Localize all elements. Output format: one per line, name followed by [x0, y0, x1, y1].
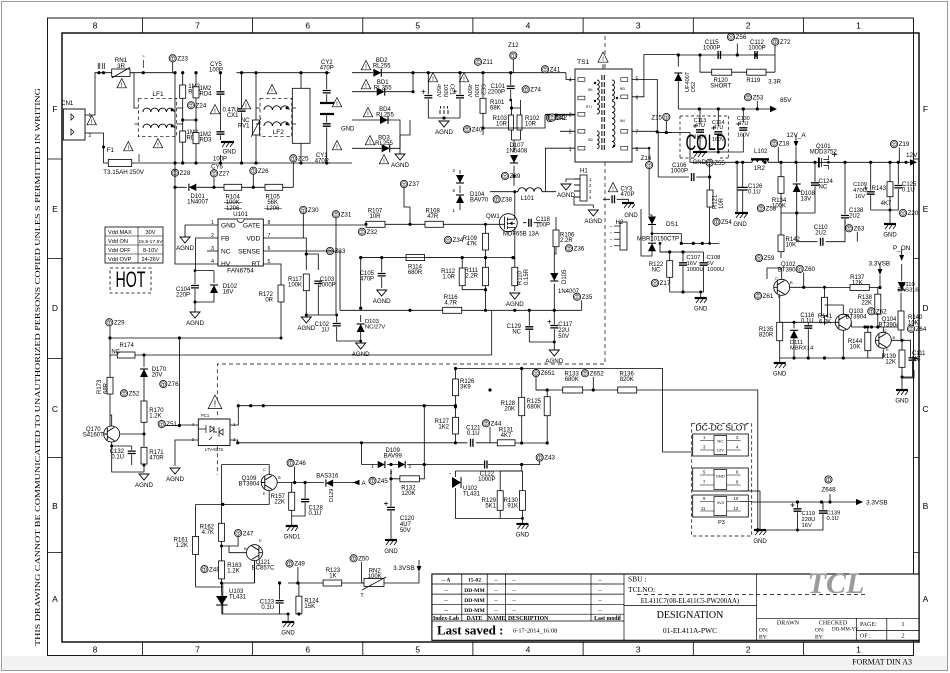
svg-text:91K: 91K — [507, 504, 518, 510]
svg-text:Z12: Z12 — [508, 42, 519, 49]
svg-text:5: 5 — [415, 645, 420, 655]
svg-text:FORMAT DIN A3: FORMAT DIN A3 — [852, 658, 912, 667]
svg-text:2: 2 — [89, 133, 92, 139]
svg-text:F: F — [923, 104, 928, 114]
svg-text:AGND: AGND — [166, 476, 184, 483]
svg-text:0.1U: 0.1U — [748, 190, 761, 196]
svg-text:--: -- — [494, 588, 498, 594]
svg-text:BAV99: BAV99 — [384, 454, 403, 460]
svg-text:!: ! — [245, 103, 247, 110]
svg-text:OF :: OF : — [860, 634, 871, 640]
svg-text:1000P: 1000P — [478, 477, 495, 483]
svg-text:10: 10 — [734, 496, 739, 501]
svg-text:AGND: AGND — [373, 298, 391, 305]
svg-text:12: 12 — [734, 506, 739, 511]
svg-text:DD-MM: DD-MM — [464, 588, 485, 594]
svg-text:T: T — [774, 40, 777, 45]
svg-text:0.1U: 0.1U — [902, 188, 915, 194]
svg-text:!: ! — [336, 144, 338, 151]
svg-text:Z41: Z41 — [550, 67, 561, 74]
svg-text:470P: 470P — [320, 66, 334, 72]
svg-text:3.3VSB: 3.3VSB — [866, 500, 888, 507]
svg-text:AGND: AGND — [391, 162, 409, 169]
svg-text:B: B — [244, 546, 247, 551]
svg-text:3V3: 3V3 — [717, 500, 725, 505]
svg-text:T3.15AH 250V: T3.15AH 250V — [103, 169, 144, 176]
svg-text:!: ! — [365, 83, 367, 90]
svg-text:T: T — [288, 561, 291, 566]
svg-text:680R: 680R — [408, 270, 423, 276]
svg-text:T: T — [447, 238, 450, 243]
svg-text:VDD: VDD — [246, 236, 260, 243]
svg-text:S4160T: S4160T — [83, 433, 104, 439]
svg-text:T: T — [902, 211, 905, 216]
svg-text:BY:: BY: — [759, 635, 768, 641]
svg-text:!: ! — [365, 64, 367, 71]
svg-text:T: T — [538, 455, 541, 460]
svg-text:AGND: AGND — [545, 358, 563, 365]
svg-text:GND: GND — [883, 233, 897, 239]
svg-text:680K: 680K — [527, 405, 541, 411]
svg-text:E: E — [259, 538, 262, 543]
svg-text:B: B — [923, 501, 929, 511]
svg-text:Z652: Z652 — [590, 371, 605, 378]
svg-text:Z11: Z11 — [483, 59, 494, 66]
svg-text:!: ! — [336, 101, 338, 108]
svg-text:T: T — [798, 267, 801, 272]
svg-text:RT1: RT1 — [586, 105, 592, 109]
svg-text:E: E — [886, 347, 889, 352]
svg-text:T: T — [203, 567, 206, 572]
svg-text:20K: 20K — [504, 407, 515, 413]
svg-text:C: C — [52, 404, 58, 414]
svg-text:RT: RT — [252, 261, 261, 268]
svg-text:4: 4 — [569, 78, 572, 84]
svg-text:0.15R: 0.15R — [524, 268, 530, 285]
svg-text:T: T — [512, 53, 515, 58]
svg-text:RL255: RL255 — [375, 141, 393, 147]
svg-text:GND: GND — [223, 150, 237, 156]
svg-text:2U2: 2U2 — [849, 214, 861, 220]
svg-text:TL431: TL431 — [463, 492, 481, 498]
svg-text:BT3904: BT3904 — [878, 323, 900, 329]
svg-text:Z23: Z23 — [177, 56, 188, 63]
svg-text:!: ! — [91, 119, 93, 126]
svg-text:!: ! — [127, 145, 129, 152]
svg-text:Z47: Z47 — [243, 530, 254, 537]
svg-text:C: C — [259, 562, 262, 567]
svg-text:~: ~ — [449, 471, 452, 476]
svg-text:!: ! — [602, 56, 604, 63]
svg-text:!: ! — [369, 139, 371, 146]
svg-text:11: 11 — [701, 506, 706, 511]
svg-text:U101: U101 — [233, 211, 248, 218]
svg-text:Z50: Z50 — [358, 556, 369, 563]
svg-text:2.2R: 2.2R — [560, 238, 573, 244]
svg-text:T: T — [551, 115, 554, 120]
svg-text:C: C — [922, 404, 928, 414]
svg-text:GND: GND — [516, 533, 530, 539]
svg-text:6: 6 — [305, 645, 310, 655]
svg-text:B: B — [893, 335, 896, 340]
svg-text:E: E — [923, 204, 929, 214]
svg-text:T: T — [568, 246, 571, 251]
svg-text:1.2K: 1.2K — [149, 414, 161, 420]
svg-text:T: T — [848, 226, 851, 231]
svg-text:120K: 120K — [401, 491, 415, 497]
svg-text:BAS316: BAS316 — [316, 474, 339, 480]
svg-text:1000P: 1000P — [703, 46, 720, 52]
svg-text:NAME: NAME — [488, 616, 506, 622]
svg-text:Z15: Z15 — [651, 115, 662, 122]
svg-text:Z49: Z49 — [294, 561, 305, 568]
svg-text:T: T — [403, 182, 406, 187]
svg-text:Z651: Z651 — [541, 370, 556, 377]
svg-text:Z55: Z55 — [714, 160, 725, 167]
svg-text:100U: 100U — [442, 84, 448, 97]
svg-text:Z35: Z35 — [582, 294, 593, 301]
svg-text:1: 1 — [856, 21, 861, 31]
svg-text:--: -- — [444, 608, 448, 614]
svg-text:1N4007: 1N4007 — [187, 200, 209, 206]
svg-text:QW1: QW1 — [486, 214, 500, 220]
svg-text:AGND: AGND — [557, 192, 575, 199]
svg-text:1K2: 1K2 — [438, 425, 449, 431]
svg-text:--: -- — [512, 608, 516, 614]
svg-text:D105: D105 — [562, 269, 568, 284]
svg-text:Z37: Z37 — [409, 181, 420, 188]
svg-text:0.1U: 0.1U — [467, 431, 480, 437]
svg-text:AGND: AGND — [506, 301, 524, 308]
svg-text:NC: NC — [717, 439, 723, 444]
svg-text:Z16: Z16 — [641, 155, 652, 162]
svg-text:T: T — [466, 127, 469, 132]
svg-text:GND: GND — [895, 399, 909, 405]
svg-text:MDF65B 13A: MDF65B 13A — [503, 232, 539, 238]
svg-text:Z27: Z27 — [219, 171, 230, 178]
svg-text:ON:: ON: — [759, 628, 769, 634]
svg-text:!: ! — [432, 76, 434, 83]
svg-text:--: -- — [598, 608, 602, 614]
svg-text:68R: 68R — [104, 382, 110, 394]
svg-text:4K7: 4K7 — [501, 433, 512, 439]
svg-text:10K: 10K — [786, 243, 797, 249]
svg-text:12K: 12K — [885, 360, 896, 366]
svg-text:T: T — [335, 212, 338, 217]
svg-text:--: -- — [512, 578, 516, 584]
svg-text:4: 4 — [526, 645, 531, 655]
svg-text:RL255: RL255 — [373, 64, 391, 70]
svg-text:3: 3 — [636, 645, 641, 655]
svg-text:2.2R: 2.2R — [465, 274, 478, 280]
svg-text:NC: NC — [221, 249, 231, 256]
svg-text:4: 4 — [526, 21, 531, 31]
svg-text:3: 3 — [636, 21, 641, 31]
svg-text:Z28: Z28 — [180, 170, 191, 177]
svg-text:5: 5 — [415, 21, 420, 31]
svg-text:12K: 12K — [852, 281, 863, 287]
svg-text:DD-MM-YY: DD-MM-YY — [832, 628, 859, 633]
svg-text:2: 2 — [569, 130, 572, 136]
svg-text:NC: NC — [512, 330, 521, 336]
svg-text:30V: 30V — [146, 230, 156, 236]
svg-text:Z59: Z59 — [764, 255, 775, 262]
svg-text:T: T — [544, 67, 547, 72]
svg-text:50V: 50V — [400, 528, 411, 534]
svg-text:CE1: CE1 — [449, 84, 455, 95]
svg-text:T: T — [361, 230, 364, 235]
svg-text:15-02: 15-02 — [468, 578, 481, 584]
svg-text:10R: 10R — [525, 122, 537, 128]
svg-text:T: T — [535, 371, 538, 376]
svg-text:85V: 85V — [780, 97, 792, 104]
svg-text:Z20: Z20 — [908, 210, 919, 217]
svg-text:TL431: TL431 — [229, 595, 247, 601]
svg-text:1000U: 1000U — [707, 267, 724, 273]
svg-text:T: T — [292, 156, 295, 161]
svg-text:T: T — [190, 103, 193, 108]
svg-text:7: 7 — [636, 130, 639, 136]
svg-text:1.0R: 1.0R — [442, 275, 455, 281]
svg-text:SHORT: SHORT — [710, 84, 731, 90]
svg-text:W2: W2 — [588, 138, 593, 142]
svg-text:GND: GND — [221, 223, 236, 230]
svg-text:AGND: AGND — [584, 218, 602, 225]
svg-text:RD3: RD3 — [200, 138, 213, 144]
svg-text:3K9: 3K9 — [460, 385, 471, 391]
svg-text:RD4: RD4 — [200, 92, 213, 98]
svg-text:NC: NC — [819, 185, 828, 191]
svg-text:T: T — [648, 163, 651, 168]
svg-text:--: -- — [494, 598, 498, 604]
svg-text:Z18: Z18 — [779, 141, 790, 148]
svg-text:B: B — [790, 280, 793, 285]
svg-text:DRAWN: DRAWN — [777, 621, 800, 627]
svg-text:Z54: Z54 — [721, 219, 732, 226]
svg-text:EL411C7(08-EL411C5-PW200AA): EL411C7(08-EL411C5-PW200AA) — [641, 598, 739, 605]
svg-text:GND1: GND1 — [284, 535, 301, 541]
svg-text:PAGE:: PAGE: — [860, 622, 877, 628]
svg-text:T: T — [160, 422, 163, 427]
svg-text:SBU :: SBU : — [628, 575, 647, 584]
svg-text:Vdd OVP: Vdd OVP — [108, 257, 132, 263]
svg-text:!: ! — [271, 88, 273, 95]
svg-text:0.1U: 0.1U — [111, 455, 124, 461]
svg-text:4.7K: 4.7K — [202, 530, 214, 536]
svg-text:LF2: LF2 — [273, 129, 285, 136]
svg-text:6: 6 — [305, 21, 310, 31]
svg-text:820R: 820R — [759, 333, 774, 339]
svg-text:1: 1 — [856, 645, 861, 655]
svg-text:Z61: Z61 — [763, 293, 774, 300]
svg-text:10R: 10R — [496, 122, 508, 128]
svg-text:L101: L101 — [521, 196, 535, 202]
svg-text:T: T — [654, 281, 657, 286]
svg-text:T: T — [747, 95, 750, 100]
svg-text:1U: 1U — [321, 328, 329, 334]
svg-text:Vdd OFF: Vdd OFF — [108, 248, 131, 254]
svg-text:0.1U: 0.1U — [827, 516, 839, 522]
svg-text:1N5408: 1N5408 — [506, 149, 528, 155]
svg-text:7: 7 — [195, 21, 200, 31]
svg-text:T: T — [289, 461, 292, 466]
svg-text:1.2K: 1.2K — [227, 569, 239, 575]
svg-text:F1: F1 — [107, 147, 115, 154]
svg-text:C: C — [884, 328, 887, 333]
svg-text:100U: 100U — [473, 84, 479, 97]
svg-text:5K1: 5K1 — [485, 504, 496, 510]
svg-text:--: -- — [494, 578, 498, 584]
svg-text:GND: GND — [341, 127, 355, 133]
svg-text:450V: 450V — [466, 84, 472, 97]
svg-text:~: ~ — [142, 54, 145, 60]
svg-text:BAS316: BAS316 — [897, 288, 918, 294]
svg-text:Z60: Z60 — [804, 266, 815, 273]
svg-text:E: E — [52, 204, 58, 214]
svg-text:47K: 47K — [466, 242, 477, 248]
svg-text:Z53: Z53 — [753, 95, 764, 102]
svg-text:W3: W3 — [620, 87, 625, 91]
svg-text:TCLNO:: TCLNO: — [628, 585, 655, 594]
svg-text:Z72: Z72 — [780, 39, 791, 46]
svg-text:Z64: Z64 — [916, 326, 927, 333]
svg-text:2: 2 — [746, 645, 751, 655]
svg-text:T: T — [730, 35, 733, 40]
svg-text:47U: 47U — [713, 125, 723, 131]
svg-text:--: -- — [512, 598, 516, 604]
svg-text:470R: 470R — [149, 456, 164, 462]
svg-text:T: T — [108, 320, 111, 325]
svg-text:B: B — [52, 501, 58, 511]
svg-text:0.1U: 0.1U — [309, 511, 322, 517]
svg-text:Vdd ON: Vdd ON — [108, 239, 128, 245]
svg-text:15.5-17.5V: 15.5-17.5V — [139, 239, 164, 245]
svg-text:FAN6754: FAN6754 — [227, 268, 254, 275]
svg-text:6-17-2014_16:08: 6-17-2014_16:08 — [513, 628, 557, 635]
svg-text:3: 3 — [569, 113, 572, 119]
svg-text:1000U: 1000U — [687, 267, 704, 273]
svg-text:15K: 15K — [304, 604, 315, 610]
svg-text:TCL: TCL — [808, 567, 865, 600]
svg-text:GND: GND — [693, 160, 707, 166]
svg-text:16V: 16V — [802, 523, 812, 529]
svg-text:CN1: CN1 — [61, 100, 74, 107]
svg-text:C: C — [775, 276, 778, 281]
svg-text:12V: 12V — [717, 448, 724, 453]
svg-text:T: T — [827, 477, 830, 482]
svg-text:!: ! — [612, 186, 614, 193]
svg-text:T: T — [477, 60, 480, 65]
svg-text:!: ! — [157, 142, 159, 149]
svg-text:R119: R119 — [746, 78, 761, 84]
svg-text:T: T — [504, 174, 507, 179]
svg-text:DESCRIPTION: DESCRIPTION — [508, 616, 549, 622]
svg-text:GND: GND — [716, 474, 725, 479]
svg-text:R173: R173 — [97, 379, 103, 394]
svg-text:T: T — [162, 382, 165, 387]
svg-text:--: -- — [444, 598, 448, 604]
svg-text:Z42: Z42 — [557, 115, 568, 122]
svg-text:1.2K: 1.2K — [176, 543, 188, 549]
svg-text:MBRX14: MBRX14 — [790, 346, 814, 352]
svg-text:16V: 16V — [223, 290, 234, 296]
svg-text:Z63: Z63 — [854, 226, 865, 233]
svg-text:2U2: 2U2 — [815, 231, 827, 237]
svg-text:1K: 1K — [329, 574, 336, 580]
svg-text:--: -- — [598, 588, 602, 594]
svg-text:T: T — [758, 256, 761, 261]
svg-text:--: -- — [444, 588, 448, 594]
svg-text:Z51: Z51 — [166, 421, 177, 428]
svg-text:1R2: 1R2 — [754, 166, 766, 172]
svg-text:P3: P3 — [718, 520, 725, 526]
svg-text:GND: GND — [281, 631, 295, 637]
svg-text:GND: GND — [384, 549, 398, 555]
svg-text:HOT: HOT — [116, 267, 146, 292]
svg-text:T: T — [495, 197, 498, 202]
svg-text:DC-DC SLOT: DC-DC SLOT — [696, 423, 748, 433]
svg-text:6.2K: 6.2K — [819, 320, 831, 326]
svg-text:680K: 680K — [565, 377, 579, 383]
svg-text:Z36: Z36 — [574, 246, 585, 253]
svg-text:8: 8 — [93, 645, 98, 655]
svg-text:T: T — [123, 391, 126, 396]
svg-text:TS1: TS1 — [577, 59, 590, 66]
svg-text:--: -- — [598, 578, 602, 584]
svg-text:AGND: AGND — [186, 320, 204, 327]
svg-text:8: 8 — [93, 21, 98, 31]
svg-text:BY:: BY: — [815, 635, 824, 641]
svg-text:DS1: DS1 — [666, 221, 679, 228]
svg-text:470P: 470P — [360, 277, 374, 283]
svg-text:Z31: Z31 — [341, 212, 352, 219]
svg-text:AGND: AGND — [176, 245, 194, 252]
svg-text:22K: 22K — [274, 500, 285, 506]
svg-text:GND: GND — [773, 372, 787, 378]
svg-text:RL255: RL255 — [376, 113, 394, 119]
svg-text:ON:: ON: — [815, 628, 825, 634]
svg-text:RV1: RV1 — [238, 124, 250, 130]
svg-text:Z30: Z30 — [308, 207, 319, 214]
svg-text:T: T — [757, 294, 760, 299]
svg-text:Z38: Z38 — [501, 197, 512, 204]
svg-text:T: T — [237, 531, 240, 536]
svg-text:Z45: Z45 — [377, 478, 388, 485]
svg-text:DD-MM: DD-MM — [464, 608, 485, 614]
svg-text:GND: GND — [694, 307, 708, 313]
svg-text:Z32: Z32 — [367, 229, 378, 236]
svg-text:Z24: Z24 — [196, 102, 207, 109]
svg-text:Vdd MAX: Vdd MAX — [108, 230, 132, 236]
svg-text:FB: FB — [221, 236, 230, 243]
svg-text:Z29: Z29 — [114, 320, 125, 327]
svg-text:--: -- — [494, 608, 498, 614]
svg-text:47R: 47R — [427, 214, 439, 220]
svg-text:0.1U: 0.1U — [801, 319, 814, 325]
svg-text:Z56: Z56 — [736, 34, 747, 41]
svg-text:1000P: 1000P — [748, 46, 765, 52]
svg-text:BC857C: BC857C — [252, 566, 275, 572]
svg-text:W1: W1 — [588, 88, 593, 92]
svg-text:Z46: Z46 — [295, 460, 306, 467]
svg-text:SENSE: SENSE — [238, 249, 261, 256]
svg-text:T: T — [352, 556, 355, 561]
svg-text:T: T — [371, 479, 374, 484]
svg-text:8-10V: 8-10V — [143, 248, 158, 254]
svg-text:BT3904: BT3904 — [845, 315, 867, 321]
svg-text:E: E — [263, 491, 266, 496]
svg-text:Z62: Z62 — [876, 309, 887, 316]
